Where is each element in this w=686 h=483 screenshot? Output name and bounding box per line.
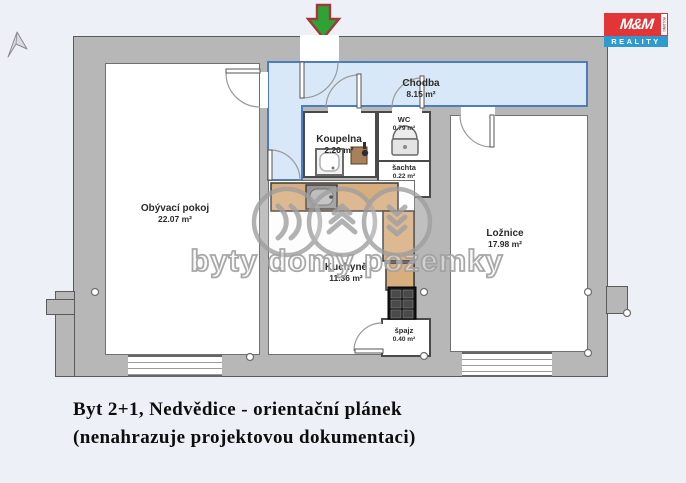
label-sachta: šachta 0.22 m²: [392, 164, 416, 180]
room-name: WC: [393, 116, 415, 125]
wall-pier-right: [606, 286, 628, 314]
room-area: 0.22 m²: [392, 173, 416, 180]
room-name: Obývací pokoj: [141, 203, 209, 215]
room-name: Ložnice: [486, 228, 523, 240]
logo-top-bar: M&M HOLDING: [604, 13, 668, 36]
label-wc: WC 0.79 m²: [393, 116, 415, 132]
label-spajz: špajz 0.40 m²: [393, 327, 415, 343]
bedroom-window: [462, 352, 552, 377]
caption-line2: (nenahrazuje projektovou dokumentaci): [73, 427, 416, 449]
room-area: 0.40 m²: [393, 336, 415, 343]
room-name: špajz: [393, 327, 415, 336]
logo-holding-text: HOLDING: [661, 14, 667, 35]
room-area: 2.20 m²: [316, 146, 362, 156]
room-name: šachta: [392, 164, 416, 173]
north-arrow-icon: [5, 30, 33, 60]
wall-tab-left: [46, 299, 75, 315]
label-koupelna: Koupelna 2.20 m²: [316, 134, 362, 155]
room-name: Koupelna: [316, 134, 362, 146]
floor-plan-page: M&M HOLDING REALITY: [0, 0, 686, 483]
label-obyvaci-pokoj: Obývací pokoj 22.07 m²: [141, 203, 209, 224]
room-area: 22.07 m²: [141, 215, 209, 225]
mm-reality-logo: M&M HOLDING REALITY: [604, 13, 668, 47]
living-window: [128, 355, 222, 377]
room-area: 0.79 m²: [393, 125, 415, 132]
logo-reality-bar: REALITY: [604, 36, 668, 47]
room-name: Chodba: [402, 78, 439, 90]
label-chodba: Chodba 8.15 m²: [402, 78, 439, 99]
room-area: 8.15 m²: [402, 90, 439, 100]
logo-mm-text: M&M: [619, 16, 654, 33]
watermark-text: byty domy pozemky: [190, 243, 503, 279]
caption-line1: Byt 2+1, Nedvědice - orientační plánek: [73, 399, 402, 421]
